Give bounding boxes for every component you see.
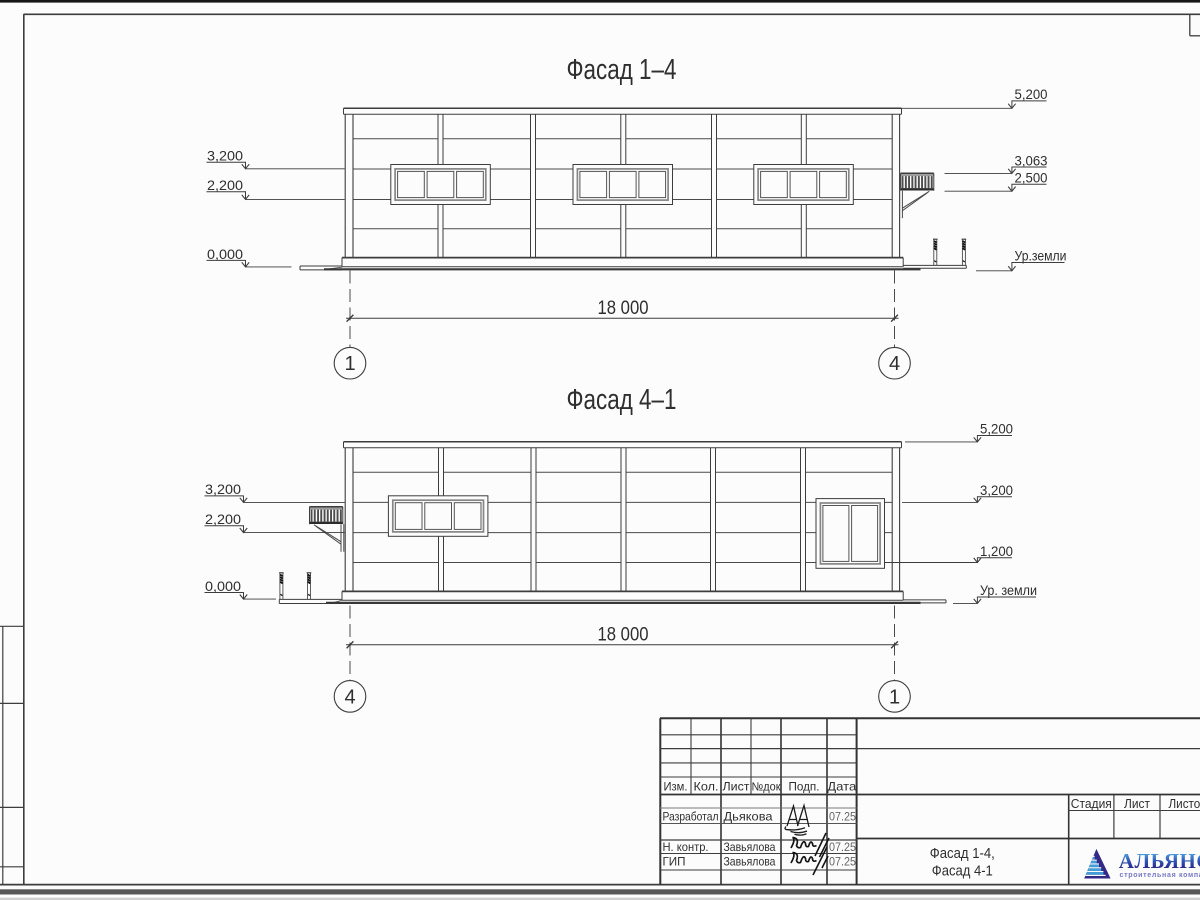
svg-text:Изм.: Изм.	[664, 779, 688, 793]
svg-text:Фасад 4-1: Фасад 4-1	[932, 863, 993, 880]
svg-text:Разработал: Разработал	[663, 810, 719, 824]
svg-text:Стадия: Стадия	[1071, 797, 1112, 811]
svg-text:Фасад 1-4,: Фасад 1-4,	[930, 845, 995, 862]
svg-text:АЛЬЯНС: АЛЬЯНС	[1119, 849, 1200, 873]
svg-text:ГИП: ГИП	[663, 855, 686, 869]
svg-text:Дьякова: Дьякова	[724, 810, 773, 824]
svg-text:3,200: 3,200	[207, 148, 243, 164]
svg-text:0,000: 0,000	[207, 246, 243, 262]
svg-text:Фасад 4–1: Фасад 4–1	[567, 384, 677, 416]
svg-text:Лист: Лист	[1124, 797, 1150, 811]
svg-text:3,063: 3,063	[1015, 152, 1048, 168]
svg-text:2,200: 2,200	[205, 511, 241, 527]
svg-text:07.25: 07.25	[829, 840, 856, 854]
svg-text:5,200: 5,200	[980, 421, 1013, 437]
svg-text:№док: №док	[752, 779, 782, 793]
svg-text:3,200: 3,200	[980, 482, 1013, 498]
svg-text:Завьялова: Завьялова	[724, 855, 776, 869]
svg-text:Ур.земли: Ур.земли	[1015, 248, 1067, 264]
svg-text:Листов: Листов	[1169, 797, 1200, 811]
svg-text:1: 1	[889, 686, 900, 708]
svg-text:Н. контр.: Н. контр.	[663, 840, 709, 854]
svg-text:18 000: 18 000	[598, 297, 649, 319]
svg-text:Лист: Лист	[723, 779, 751, 793]
svg-text:1: 1	[344, 353, 355, 375]
svg-text:3,200: 3,200	[205, 481, 241, 497]
svg-text:Дата: Дата	[827, 779, 856, 793]
svg-text:07.25: 07.25	[829, 810, 856, 824]
svg-text:2,200: 2,200	[207, 177, 243, 193]
svg-text:Подп.: Подп.	[789, 779, 820, 793]
svg-text:Фасад 1–4: Фасад 1–4	[567, 54, 677, 86]
svg-text:18 000: 18 000	[598, 623, 649, 645]
svg-text:Завьялова: Завьялова	[724, 840, 776, 854]
svg-text:Кол.: Кол.	[694, 779, 719, 793]
svg-text:строительная компания: строительная компания	[1120, 872, 1200, 879]
svg-text:07.25: 07.25	[829, 855, 856, 869]
svg-text:Ур. земли: Ур. земли	[980, 582, 1037, 598]
svg-text:1,200: 1,200	[980, 543, 1013, 559]
svg-text:4: 4	[344, 686, 355, 708]
svg-text:5,200: 5,200	[1015, 86, 1048, 102]
svg-text:0,000: 0,000	[205, 578, 241, 594]
svg-text:2,500: 2,500	[1015, 170, 1048, 186]
svg-text:4: 4	[889, 353, 900, 375]
